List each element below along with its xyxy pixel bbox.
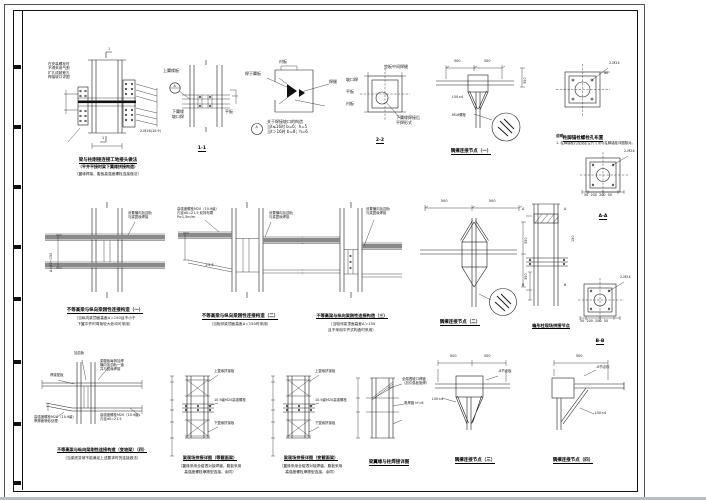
d14-bolt-note-right: 高强度螺栓M20（10.9级） 孔径d0=21.5: [100, 414, 142, 422]
d14-bolt-note-left: 高强度螺栓M20（10.9级） 摩擦面喷砂处理: [34, 416, 76, 424]
d14-stiffener-label: 加劲肋: [74, 352, 84, 356]
d8-note-2: 下翼平齐时弯矩较大处均可采用）: [77, 322, 132, 326]
d12-title: 箱形柱现场拼接节点: [532, 323, 570, 329]
d5-title: 隅撑连接节点（一）: [451, 149, 492, 155]
d2-top-flange-label: 上翼缘板: [163, 69, 179, 74]
d1-note-bracket: （翼缘焊接、腹板高强度螺栓连接做法）: [75, 172, 141, 176]
margin-tick: [13, 481, 21, 485]
sheet-note-1: 1. 柱脚锚栓孔径及定位尺寸须与柱脚锚栓详图核对。: [556, 140, 635, 145]
d16-bottom-plate-label: 下翼缘拼接板: [315, 422, 335, 426]
d5-dim-left: 500: [454, 60, 460, 64]
d17-weld-note-1: 全熔透坡口焊缝 （加引弧板施焊）: [402, 378, 429, 386]
d3-weld-label: 焊缝: [329, 80, 337, 85]
d15-note-2: 高强度螺栓摩擦型连接，余同）: [184, 470, 236, 474]
d18-title: 隅撑连接节点（三）: [455, 458, 496, 464]
d5-dim-vert: 350: [524, 78, 528, 84]
d17-weld-note-2: 角焊缝 hf=6: [404, 402, 424, 406]
d8-gap-dim: Δ=50～150: [50, 253, 54, 272]
d8-stiffener-note: 设置横向加劲肋 与梁翼缘焊接: [128, 212, 152, 220]
d3-groove-notes: 关于焊接坡口的构造 当t≤16时 b=6；h=5 当t＞16时 b=8；h=6: [267, 120, 308, 134]
d14-note: （当梁底变坡不能满足上述要求时的连接做法）: [63, 456, 140, 460]
detail-flange-weld: 全熔透坡口焊缝 （加引弧板施焊） 角焊缝 hf=6 梁翼缘与柱焊接详图: [344, 362, 434, 462]
d5-dim-right: 500: [484, 60, 490, 64]
d16-note-2: 高强度螺栓摩擦型连接，余同）: [285, 470, 337, 474]
d13-dims: 50 200 200 50: [580, 320, 608, 324]
d2-bottom-flange-label: 下翼缘 坡口焊: [172, 110, 184, 120]
d4-title: 2-2: [376, 138, 384, 144]
d18-angle-label: L50×4: [432, 398, 443, 402]
d9-stiffener-note: 设置横向加劲肋 与梁翼缘焊接: [269, 212, 293, 220]
d17-title: 梁翼缘与柱焊接详图: [369, 460, 410, 466]
d4-top-label: 垫板中间焊缝: [384, 65, 408, 70]
d4-backing-label: 衬板: [346, 102, 354, 107]
detail-knee-brace-node-4: 500 -8节点板 L50×4 隅撑连接节点（四）: [536, 356, 636, 458]
detail-rigid-connection-1: Δ=50～150 设置横向加劲肋 与梁翼缘焊接 不等高梁与纵向梁刚性连接构造（一…: [40, 200, 170, 320]
d5-bolt-label: M16螺栓: [452, 114, 466, 118]
d18-dim-2: 500: [484, 355, 490, 359]
d3-backing-label: 衬板: [279, 60, 287, 65]
d2-detail-a-mark: A: [174, 85, 176, 89]
detail-rigid-connection-3: 设置横向加劲肋 与梁翼缘焊接 不等高梁与纵向梁刚性连接构造（三） （当相邻梁顶面…: [300, 200, 404, 326]
sheet-notes-heading: 说明：: [556, 134, 567, 139]
d9-bolt-note: 高强度螺栓M20（10.9级） 孔径d0=21.5 双排布置 P≥1.5m/m: [177, 208, 219, 220]
detail-knee-brace-node-2: 500 500 350 350 隅撑连接节点（二）: [415, 200, 527, 322]
d11-dim-left: 500: [441, 200, 447, 204]
d1-weld-note: 在安装螺栓时 不得采用气割 扩孔成超差孔 焊接坡口详图: [48, 62, 70, 79]
d12-mark-a1: A: [522, 208, 524, 212]
margin-tick: [13, 65, 21, 69]
d18-dim-1: 500: [450, 355, 456, 359]
d7-dims: 50 200 200 50: [584, 194, 612, 198]
d15-bottom-plate-label: 下翼缘拼接板: [214, 422, 234, 426]
d6-dim-label: 60: [604, 72, 608, 76]
d19-title: 隅撑连接节点（四）: [553, 458, 594, 464]
d15-bolt-label: 10.9级M20高强螺栓: [214, 399, 246, 403]
d7-title: A-A: [599, 214, 608, 220]
d6-bolt-label: 2-M24: [609, 62, 620, 66]
d13-bolt-label: 2-M24: [620, 276, 631, 280]
d12-mark-b2: B: [564, 284, 566, 288]
margin-tick: [13, 297, 21, 301]
detail-weld-groove-a: 衬板 焊于翼板 焊缝 A 关于焊接坡口的构造 当t≤16时 b=6；h=5 当t…: [245, 58, 349, 146]
drawing-sheet: 在安装螺栓时 不得采用气割 扩孔成超差孔 焊接坡口详图 2-M16(10.9) …: [0, 0, 706, 500]
d1-section-mark-bottom: 1: [102, 137, 104, 141]
d19-dim-1: 500: [576, 355, 582, 359]
d14-right-note: 梁腹板每侧加焊 横向加劲肋一道 并与翼缘焊接: [100, 360, 124, 372]
d9-note-1: （当相邻梁顶面高差Δ＜150时采用）: [209, 322, 270, 326]
detail-knee-brace-node-1: 500 500 350 L50×4 M16螺栓 隅撑连接节点（一）: [428, 58, 532, 152]
detail-anchor-bolt-layout: 2-M24 60 柱脚锚栓螺栓孔布置 说明： 1. 柱脚锚栓孔径及定位尺寸须与柱…: [552, 58, 646, 148]
d18-gusset-label: -8节点板: [498, 370, 512, 374]
detail-beam-column-field-splice: 在安装螺栓时 不得采用气割 扩孔成超差孔 焊接坡口详图 2-M16(10.9) …: [44, 50, 172, 172]
d15-top-plate-label: 上翼缘拼接板: [214, 370, 234, 374]
margin-tick: [13, 125, 21, 129]
margin-tick: [13, 360, 21, 364]
d13-title: B-B: [596, 339, 605, 345]
d10-note-2: 且不采用平齐式构造时采用）: [328, 328, 376, 332]
d11-dim-right: 500: [489, 200, 495, 204]
d16-bolt-label: 10.9级M20高强螺栓: [315, 399, 347, 403]
detail-section-2-2: 垫板中间焊缝 坡口焊 平板 衬板 下翼缘焊接后 平焊形式 2-2: [344, 60, 434, 138]
d19-gusset-label: -8节点板: [596, 366, 610, 370]
d4-groove-label: 坡口焊: [346, 78, 358, 83]
d12-mark-b1: B: [522, 284, 524, 288]
d18-drawing: [430, 356, 530, 458]
d4-plate-label: 平板: [346, 90, 354, 95]
detail-section-a-a: 2-M24 50 200 200 50 A-A: [578, 152, 640, 218]
d14-backing-label: 焊接垫板: [50, 374, 64, 378]
d19-angle-label: L50×4: [595, 412, 606, 416]
d3-detail-a-mark: A: [256, 126, 258, 130]
detail-rigid-connection-2: 高强度螺栓M20（10.9级） 孔径d0=21.5 双排布置 P≥1.5m/m …: [175, 200, 305, 322]
detail-beam-splice-uniform: 上翼缘拼接板 10.9级M20高强螺栓 下翼缘拼接板 梁现场拼接详图（等截面梁）…: [160, 362, 260, 478]
margin-tick: [13, 422, 21, 426]
d10-stiffener-note: 设置横向加劲肋 与梁翼缘焊接: [366, 208, 390, 216]
d5-angle-label: L50×4: [452, 96, 463, 100]
d12-mark-a2: A: [564, 208, 566, 212]
binding-margin-line: [22, 10, 23, 490]
detail-section-b-b: 2-M24 50 200 200 50 B-B: [572, 276, 640, 338]
d9-slope-label: 1:2.5: [205, 264, 214, 268]
d11-drawing: [415, 200, 527, 322]
d7-bolt-label: 2-M24: [624, 150, 635, 154]
d4-bottom-note: 下翼缘焊接后 平焊形式: [396, 116, 420, 126]
detail-section-1-1: 上翼缘板 A 下翼缘 坡口焊 平板 1-1: [158, 60, 246, 144]
d3-left-label: 焊于翼板: [245, 72, 261, 77]
d19-drawing: [536, 356, 636, 458]
d12-dim-150: 150: [572, 236, 576, 242]
margin-tick: [13, 245, 21, 249]
d2-title: 1-1: [198, 146, 206, 152]
d2-plate-label: 平板: [225, 110, 233, 115]
detail-knee-brace-node-3: 500 500 L50×4 -8节点板 隅撑连接节点（三）: [430, 356, 530, 458]
d16-top-plate-label: 上翼缘拼接板: [315, 370, 335, 374]
margin-tick: [13, 185, 21, 189]
detail-rigid-connection-4: 加劲肋 梁腹板每侧加焊 横向加劲肋一道 并与翼缘焊接 焊接垫板 高强度螺栓M20…: [34, 350, 170, 458]
d11-title: 隅撑连接节点（二）: [440, 320, 481, 326]
d1-section-mark-top: 1: [108, 48, 110, 52]
